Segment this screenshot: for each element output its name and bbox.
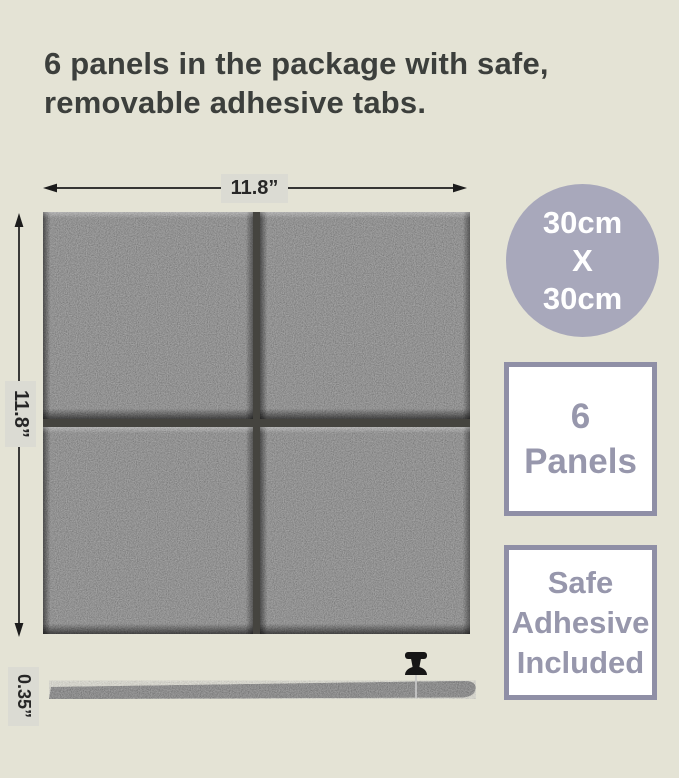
size-badge-line: X [572,242,593,280]
page-title: 6 panels in the package with safe,remova… [44,44,549,122]
pin-body [405,652,427,675]
thickness-label: 0.35” [8,667,39,726]
panel-count-badge: 6 Panels [504,362,657,516]
panel-tile [260,212,470,419]
size-badge-line: 30cm [543,280,622,318]
panel-count-line: Panels [524,439,637,484]
headline-line1: 6 panels in the package with safe, [44,46,549,81]
panel-front-image [43,212,470,634]
height-arrow-top-head [15,213,24,227]
adhesive-line: Included [517,643,644,683]
panel-tile [43,212,253,419]
adhesive-badge: Safe Adhesive Included [504,545,657,700]
size-badge: 30cm X 30cm [506,184,659,337]
headline-line2: removable adhesive tabs. [44,85,426,120]
height-arrow-bottom-head [15,623,24,637]
panel-count-line: 6 [571,394,590,439]
panel-tile [260,427,470,634]
size-badge-line: 30cm [543,204,622,242]
width-arrow-left-head [43,184,57,193]
width-label: 11.8” [221,174,288,203]
panel-tile [43,427,253,634]
product-infographic: 6 panels in the package with safe,remova… [0,0,679,778]
width-arrow-right-head [453,184,467,193]
height-label: 11.8” [5,381,36,447]
push-pin-icon [394,652,438,702]
adhesive-line: Adhesive [512,603,650,643]
adhesive-line: Safe [548,563,613,603]
